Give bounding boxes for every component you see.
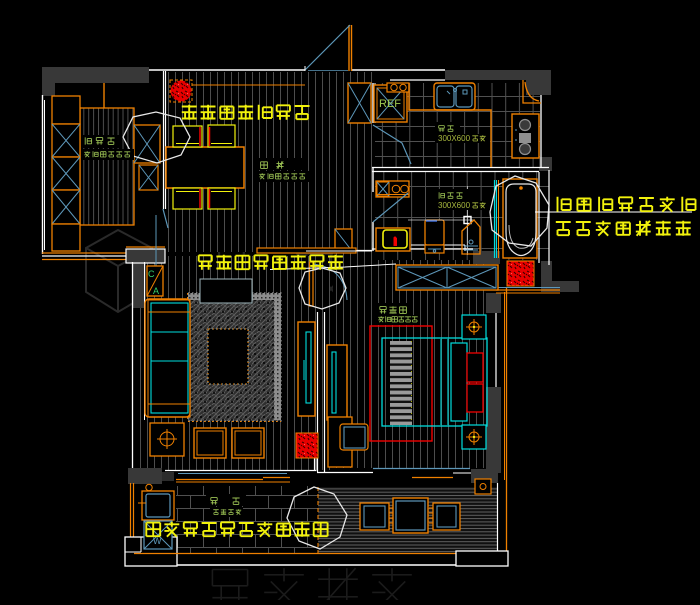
- svg-text:W: W: [153, 536, 162, 546]
- svg-text:C: C: [148, 269, 155, 279]
- svg-text:300X600: 300X600: [438, 134, 471, 143]
- svg-text:300X600: 300X600: [438, 201, 471, 210]
- svg-text:REF: REF: [379, 98, 401, 110]
- svg-text:A: A: [153, 286, 159, 296]
